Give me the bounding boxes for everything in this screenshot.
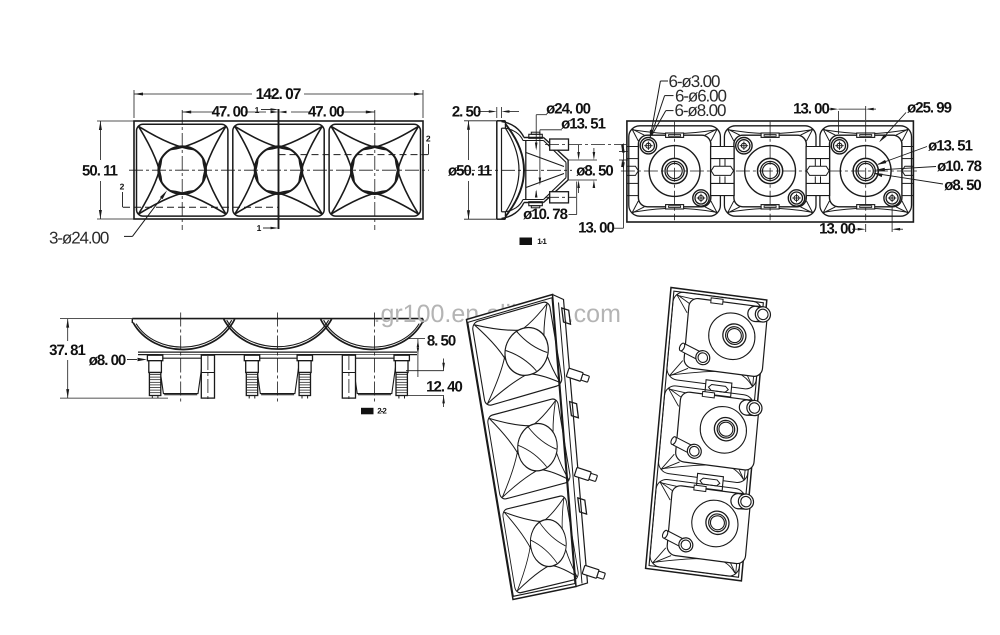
- svg-text:50. 11: 50. 11: [82, 163, 118, 180]
- svg-text:12. 40: 12. 40: [426, 379, 462, 396]
- svg-text:ø10. 78: ø10. 78: [523, 206, 568, 223]
- svg-text:13. 00: 13. 00: [578, 220, 614, 237]
- svg-text:47. 00: 47. 00: [308, 104, 344, 121]
- svg-text:8. 50: 8. 50: [427, 333, 456, 350]
- svg-text:ø13. 51: ø13. 51: [561, 116, 606, 133]
- svg-text:13. 00: 13. 00: [793, 101, 829, 118]
- svg-text:ø10. 78: ø10. 78: [937, 158, 982, 175]
- svg-text:2. 50: 2. 50: [452, 104, 481, 121]
- svg-text:ø13. 51: ø13. 51: [928, 138, 973, 155]
- svg-text:ø8. 50: ø8. 50: [944, 177, 981, 194]
- svg-text:6-ø8.00: 6-ø8.00: [675, 101, 727, 120]
- svg-text:13. 00: 13. 00: [819, 221, 855, 238]
- svg-text:3-ø24.00: 3-ø24.00: [49, 229, 109, 248]
- svg-text:ø25. 99: ø25. 99: [907, 100, 952, 117]
- svg-text:47. 00: 47. 00: [212, 104, 248, 121]
- svg-text:ø8. 50: ø8. 50: [576, 163, 613, 180]
- svg-text:ø50. 11: ø50. 11: [448, 163, 492, 180]
- svg-text:37. 81: 37. 81: [49, 342, 85, 359]
- svg-text:ø8. 00: ø8. 00: [89, 352, 126, 369]
- svg-text:142. 07: 142. 07: [256, 86, 301, 103]
